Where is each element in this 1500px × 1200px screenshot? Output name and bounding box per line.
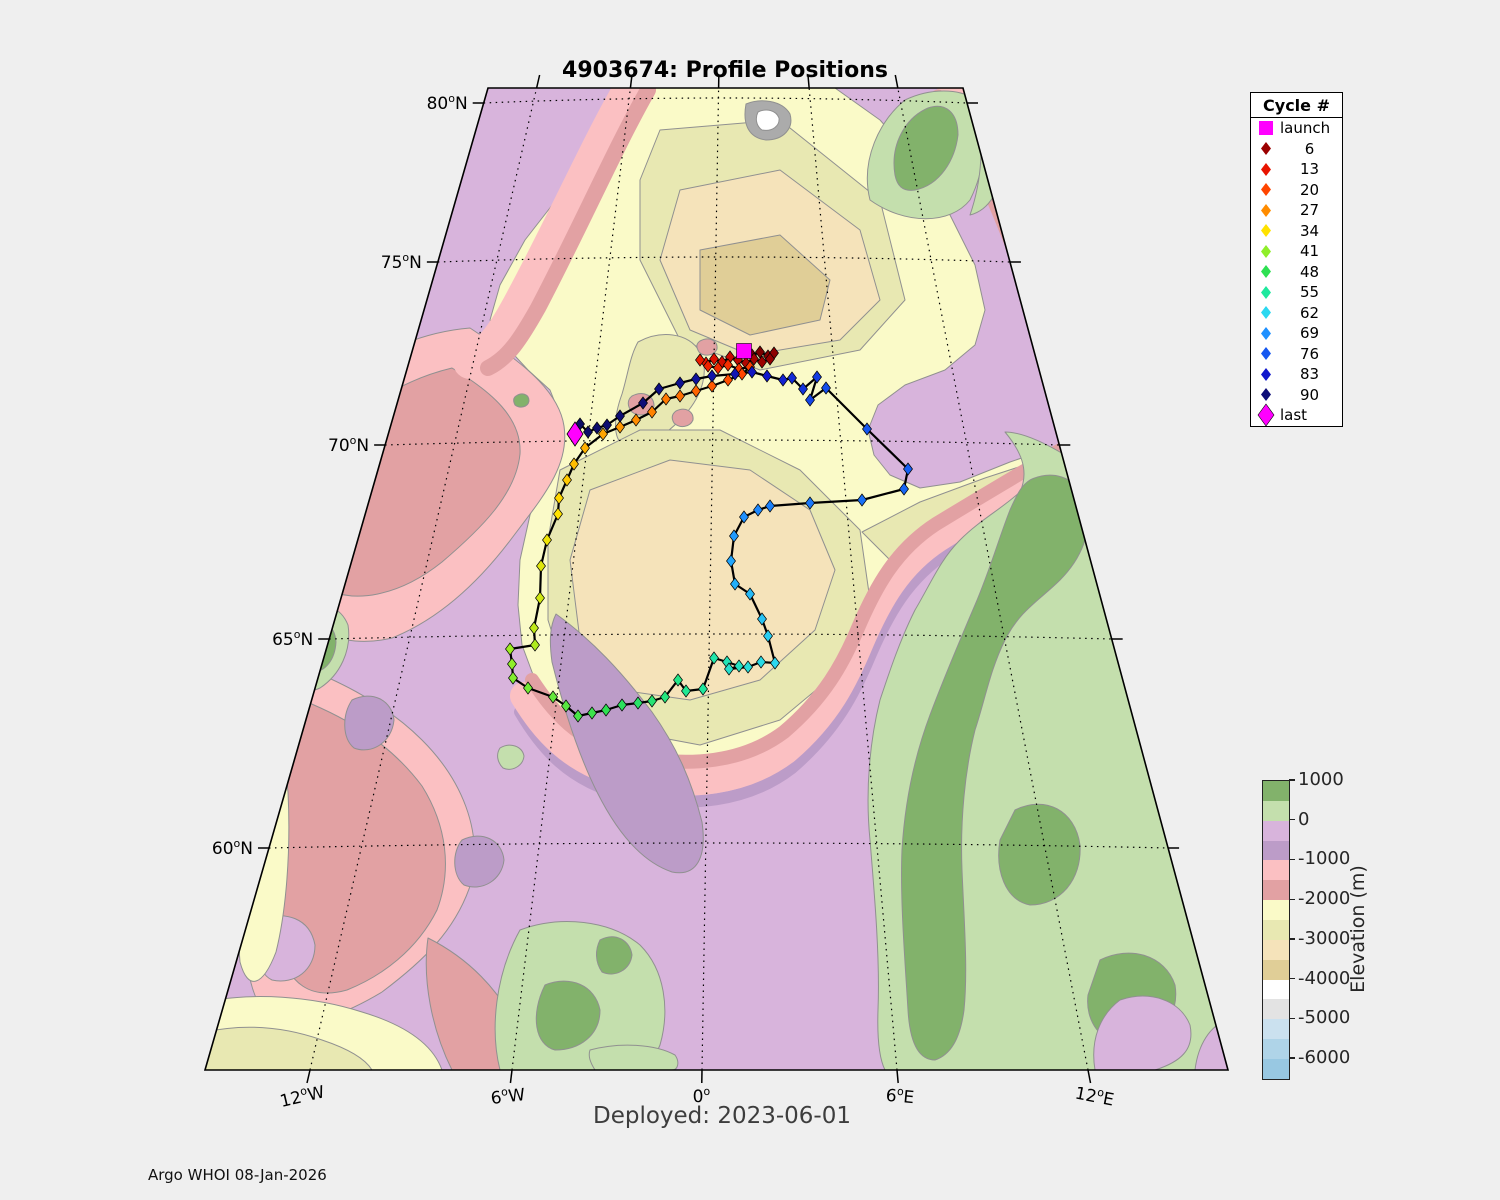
colorbar-segment <box>1263 781 1289 801</box>
lon-tick <box>307 1070 310 1083</box>
colorbar-segment <box>1263 1039 1289 1059</box>
legend-label: 27 <box>1279 201 1340 219</box>
colorbar-segment <box>1263 999 1289 1019</box>
axis-tick-label: 12oW <box>278 1080 327 1112</box>
colorbar-segment <box>1263 920 1289 940</box>
colorbar-segment <box>1263 801 1289 821</box>
colorbar-tick-label: -6000 <box>1298 1047 1350 1068</box>
legend-row: 48 <box>1251 262 1342 283</box>
lon-tick <box>897 1070 898 1083</box>
axis-tick-label: 75oN <box>381 251 422 273</box>
colorbar-tick <box>1289 899 1295 900</box>
deep-hole-inner <box>756 110 779 130</box>
legend-label: 13 <box>1279 160 1340 178</box>
legend-row: launch <box>1251 118 1342 139</box>
cycle-swatch <box>1253 264 1279 279</box>
credit-label: Argo WHOI 08-Jan-2026 <box>148 1166 327 1184</box>
cycle-swatch <box>1253 387 1279 402</box>
legend-row: 69 <box>1251 323 1342 344</box>
colorbar-tick <box>1289 1057 1295 1058</box>
legend-row: 13 <box>1251 159 1342 180</box>
legend-row: last <box>1251 405 1342 426</box>
colorbar-tick-label: 1000 <box>1298 769 1344 790</box>
legend-label: 6 <box>1279 140 1340 158</box>
colorbar-tick <box>1289 859 1295 860</box>
cycle-swatch <box>1253 305 1279 320</box>
cycle-swatch <box>1253 367 1279 382</box>
colorbar-tick <box>1289 1018 1295 1019</box>
legend-label: 41 <box>1279 242 1340 260</box>
colorbar-tick <box>1289 779 1295 780</box>
rose-speck <box>672 409 693 426</box>
legend-row: 6 <box>1251 139 1342 160</box>
colorbar-segment <box>1263 1019 1289 1039</box>
legend-label: launch <box>1279 119 1340 137</box>
legend-label: 69 <box>1279 324 1340 342</box>
colorbar-segment <box>1263 821 1289 841</box>
legend-label: 20 <box>1279 181 1340 199</box>
legend-label: 90 <box>1279 386 1340 404</box>
legend-label: 76 <box>1279 345 1340 363</box>
legend-rows: launch6132027344148556269768390last <box>1251 118 1342 426</box>
colorbar-segment <box>1263 980 1289 1000</box>
legend-row: 90 <box>1251 385 1342 406</box>
colorbar-segment <box>1263 900 1289 920</box>
colorbar-tick <box>1289 938 1295 939</box>
lon-tick <box>1088 1070 1091 1083</box>
last-swatch <box>1253 403 1279 427</box>
legend-label: 62 <box>1279 304 1340 322</box>
axis-tick-label: 80oN <box>427 92 468 114</box>
legend-row: 41 <box>1251 241 1342 262</box>
legend-row: 62 <box>1251 303 1342 324</box>
legend-row: 34 <box>1251 221 1342 242</box>
cycle-swatch <box>1253 244 1279 259</box>
launch-swatch <box>1253 120 1279 136</box>
bathymetry-layer <box>205 86 1228 1070</box>
colorbar-segment <box>1263 960 1289 980</box>
deployed-label: Deployed: 2023-06-01 <box>593 1103 851 1129</box>
colorbar-segment <box>1263 841 1289 861</box>
legend-label: 48 <box>1279 263 1340 281</box>
axis-tick-label: 12oE <box>1073 1082 1116 1111</box>
cycle-swatch <box>1253 346 1279 361</box>
colorbar-tick-label: -2000 <box>1298 888 1350 909</box>
page-title: 4903674: Profile Positions <box>562 58 888 83</box>
legend-row: 27 <box>1251 200 1342 221</box>
lon-tick <box>510 1070 512 1083</box>
colorbar-tick <box>1289 978 1295 979</box>
legend-label: last <box>1279 406 1340 424</box>
axis-tick-label: 6oE <box>885 1084 915 1108</box>
cycle-swatch <box>1253 182 1279 197</box>
colorbar-segment <box>1263 1059 1289 1079</box>
cycle-legend: Cycle # launch6132027344148556269768390l… <box>1250 92 1343 427</box>
cycle-swatch <box>1253 326 1279 341</box>
cycle-swatch <box>1253 141 1279 156</box>
axis-tick-label: 6oW <box>490 1083 527 1109</box>
cycle-swatch <box>1253 285 1279 300</box>
cycle-swatch <box>1253 203 1279 218</box>
colorbar-segment <box>1263 880 1289 900</box>
legend-header: Cycle # <box>1251 93 1342 118</box>
colorbar-tick-label: -4000 <box>1298 968 1350 989</box>
legend-row: 76 <box>1251 344 1342 365</box>
cycle-swatch <box>1253 223 1279 238</box>
legend-label: 55 <box>1279 283 1340 301</box>
jan-mayen <box>514 394 529 407</box>
legend-label: 34 <box>1279 222 1340 240</box>
colorbar-segment <box>1263 860 1289 880</box>
elevation-colorbar <box>1262 780 1290 1080</box>
colorbar-tick-label: -3000 <box>1298 928 1350 949</box>
legend-row: 20 <box>1251 180 1342 201</box>
colorbar-title: Elevation (m) <box>1347 865 1369 993</box>
colorbar-tick-label: 0 <box>1298 809 1309 830</box>
lon-tick <box>895 75 898 88</box>
lon-tick <box>537 75 540 88</box>
colorbar-tick <box>1289 819 1295 820</box>
colorbar-tick-label: -1000 <box>1298 849 1350 870</box>
legend-label: 83 <box>1279 365 1340 383</box>
axis-tick-label: 60oN <box>212 837 253 859</box>
legend-row: 83 <box>1251 364 1342 385</box>
colorbar-tick-label: -5000 <box>1298 1007 1350 1028</box>
axis-tick-label: 65oN <box>272 628 313 650</box>
launch-marker <box>737 344 752 359</box>
cycle-swatch <box>1253 162 1279 177</box>
legend-row: 55 <box>1251 282 1342 303</box>
figure: 80oN75oN70oN65oN60oN12oW6oW0o6oE12oE 490… <box>0 0 1500 1200</box>
axis-tick-label: 70oN <box>328 434 369 456</box>
colorbar-segment <box>1263 940 1289 960</box>
